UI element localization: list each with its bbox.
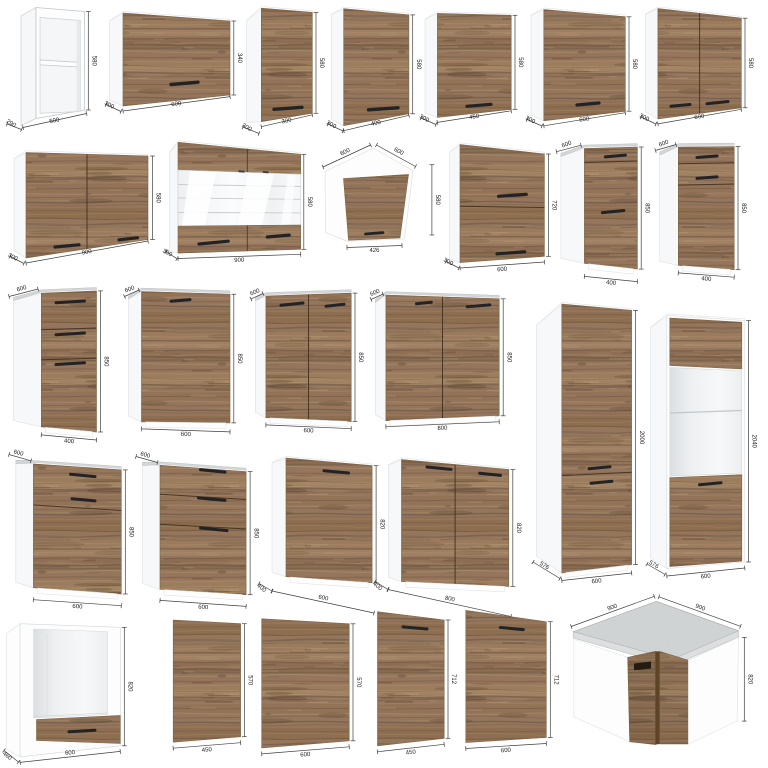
svg-text:580: 580	[747, 58, 753, 69]
svg-text:900: 900	[234, 258, 245, 264]
svg-text:600: 600	[497, 267, 508, 274]
svg-text:600: 600	[72, 604, 83, 611]
svg-text:600: 600	[501, 748, 512, 755]
svg-text:450: 450	[406, 749, 417, 756]
svg-text:850: 850	[357, 352, 363, 363]
svg-text:580: 580	[155, 193, 161, 204]
svg-text:580: 580	[517, 57, 523, 68]
svg-text:580: 580	[91, 56, 97, 67]
svg-text:600: 600	[591, 578, 602, 585]
svg-text:400: 400	[64, 438, 75, 445]
svg-text:580: 580	[434, 195, 440, 206]
svg-text:2040: 2040	[751, 435, 757, 449]
svg-text:600: 600	[300, 752, 311, 759]
svg-text:580: 580	[631, 59, 637, 70]
svg-text:850: 850	[252, 528, 258, 539]
svg-text:600: 600	[303, 428, 314, 434]
svg-text:400: 400	[701, 276, 712, 283]
svg-text:580: 580	[306, 197, 312, 208]
svg-text:600: 600	[181, 432, 192, 438]
svg-text:450: 450	[202, 747, 213, 754]
svg-text:850: 850	[505, 352, 511, 363]
svg-text:580: 580	[318, 58, 324, 69]
svg-text:820: 820	[378, 519, 384, 530]
svg-text:800: 800	[437, 426, 448, 432]
svg-text:820: 820	[515, 523, 521, 534]
svg-text:850: 850	[103, 356, 109, 367]
svg-text:712: 712	[553, 675, 559, 686]
svg-text:340: 340	[236, 53, 242, 64]
svg-text:426: 426	[369, 248, 380, 254]
svg-text:850: 850	[128, 527, 134, 538]
svg-text:400: 400	[606, 280, 617, 287]
svg-text:580: 580	[415, 59, 421, 70]
svg-text:600: 600	[198, 605, 209, 612]
svg-text:850: 850	[740, 203, 746, 214]
svg-text:570: 570	[355, 677, 361, 688]
svg-text:720: 720	[551, 200, 557, 211]
svg-text:850: 850	[643, 203, 649, 214]
svg-text:820: 820	[747, 674, 753, 685]
svg-text:2000: 2000	[638, 431, 644, 445]
svg-text:570: 570	[247, 675, 253, 686]
svg-text:820: 820	[127, 681, 133, 692]
svg-text:850: 850	[236, 353, 242, 364]
svg-text:600: 600	[65, 750, 76, 757]
svg-text:600: 600	[700, 573, 711, 580]
svg-text:712: 712	[450, 674, 456, 685]
